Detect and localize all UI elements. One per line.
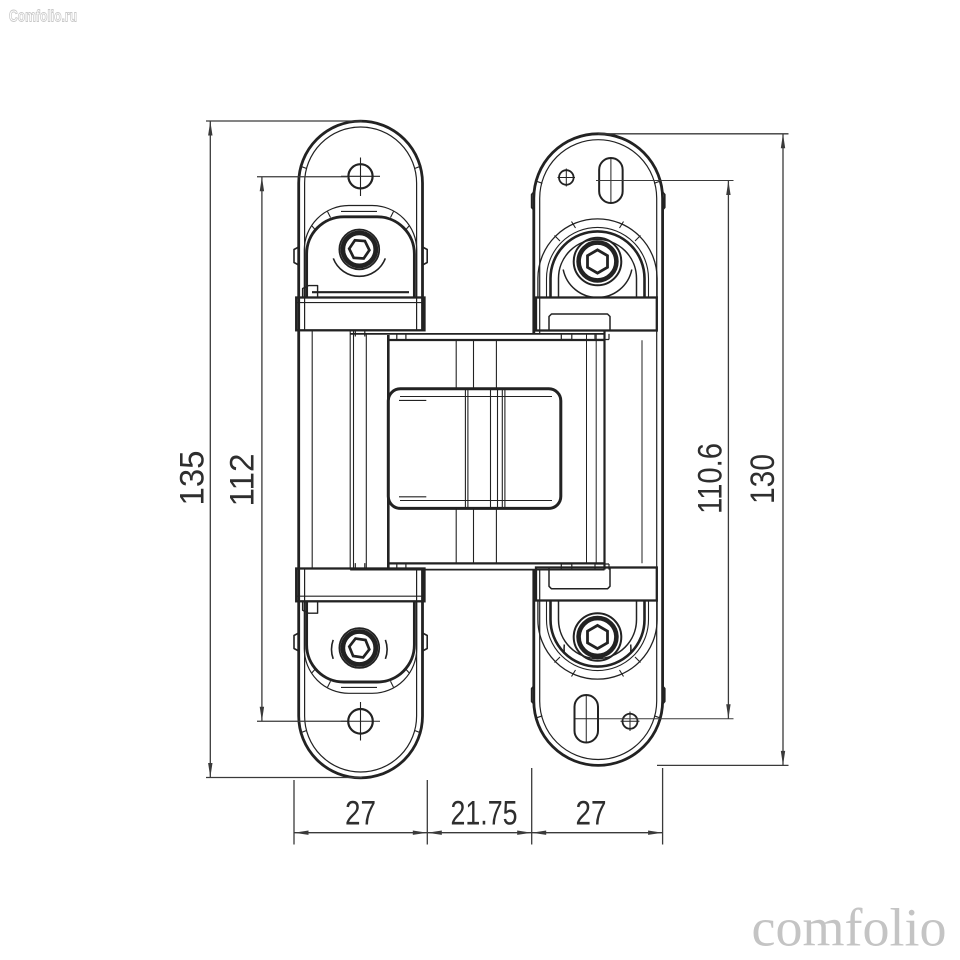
svg-text:130: 130 [744, 454, 782, 504]
svg-text:Comfolio.ru: Comfolio.ru [9, 7, 77, 25]
svg-text:21.75: 21.75 [451, 795, 518, 833]
svg-text:135: 135 [174, 451, 212, 506]
svg-text:27: 27 [576, 795, 607, 833]
svg-text:comfolio: comfolio [752, 898, 947, 958]
svg-text:110.6: 110.6 [692, 443, 730, 514]
svg-text:112: 112 [224, 454, 262, 507]
svg-text:27: 27 [345, 795, 376, 833]
